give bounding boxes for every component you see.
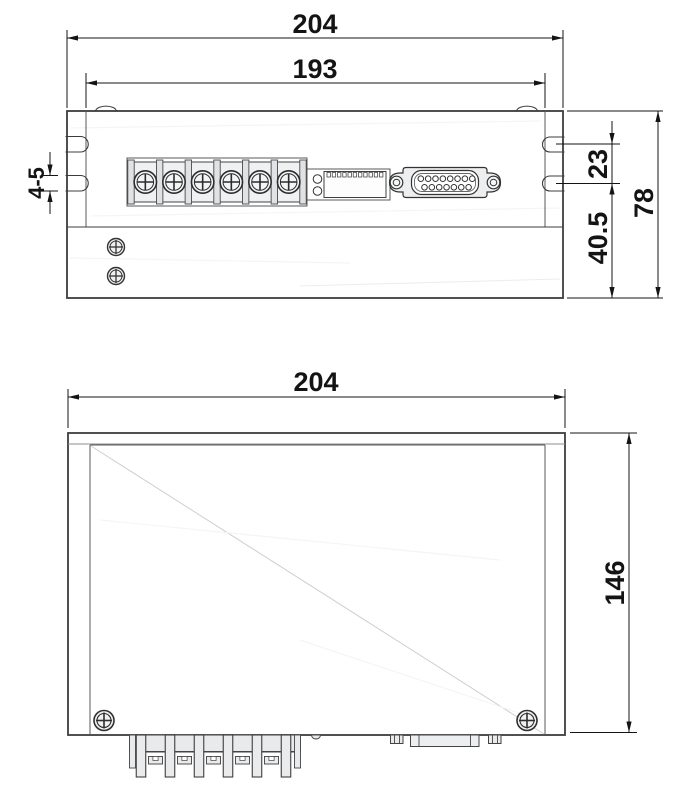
dip-tooth	[364, 173, 367, 178]
panel-screw	[108, 239, 125, 256]
db15-shell	[412, 171, 479, 195]
dip-switch	[307, 169, 390, 200]
dip-tooth	[327, 173, 330, 178]
dip-teeth	[327, 173, 383, 178]
dip-indicator-hole	[313, 175, 322, 184]
pin-block-end	[130, 735, 136, 768]
mounting-slot	[66, 137, 89, 153]
dip-tooth	[359, 173, 362, 178]
terminal-post	[271, 160, 277, 204]
dip-tooth	[332, 173, 335, 178]
terminal-pin	[252, 735, 262, 777]
terminal-block	[127, 158, 307, 206]
body-streak	[300, 279, 560, 286]
dip-tooth	[369, 173, 372, 178]
dim-label-overall-width: 204	[293, 367, 338, 397]
db15-ear-tab	[489, 735, 502, 744]
db-pin-hole	[455, 176, 461, 182]
dim-label-panel-width: 193	[292, 54, 337, 84]
mounting-slot	[66, 176, 89, 192]
panel-screw	[108, 268, 125, 285]
terminal-post	[185, 160, 191, 204]
bottom-bump	[312, 735, 321, 739]
body-streak	[100, 520, 500, 560]
top-dimensions: 204 146	[68, 367, 637, 733]
terminal-pin	[223, 735, 233, 777]
pin-tab-notch	[269, 757, 274, 761]
db-pin-hole	[458, 185, 464, 191]
dim-label-overall-depth: 146	[600, 560, 630, 605]
dim-label-overall-height: 78	[629, 188, 659, 218]
db15-ear-screw	[390, 176, 403, 189]
pin-block-end	[295, 735, 301, 768]
dip-tooth	[353, 173, 356, 178]
body-streak	[70, 258, 350, 263]
body-streak	[300, 640, 540, 720]
body-streak	[90, 208, 560, 216]
dim-label-overall-width: 204	[292, 9, 337, 39]
db-pin-hole	[422, 185, 428, 191]
terminal-post	[242, 160, 248, 204]
dim-label-slot-spacing: 23	[583, 149, 613, 179]
pin-tab-notch	[153, 757, 158, 761]
dip-tooth	[374, 173, 377, 178]
db-pin-hole	[433, 176, 439, 182]
db15-ear-tab	[391, 735, 404, 744]
pin-tab-notch	[182, 757, 187, 761]
technical-drawing: 204 193 4-5 23 40.5 78	[0, 0, 699, 800]
db-pin-hole	[451, 185, 457, 191]
dim-label-base-height: 40.5	[583, 212, 613, 265]
terminal-post	[156, 160, 162, 204]
dip-tooth	[338, 173, 341, 178]
top-view: 204 146	[68, 367, 637, 777]
front-body	[67, 111, 563, 298]
db-pin-hole	[447, 176, 453, 182]
panel-reflection-line	[91, 446, 544, 734]
db-pin-hole	[440, 176, 446, 182]
terminal-pin	[194, 735, 204, 777]
terminal-post	[300, 160, 306, 204]
db15-body-tab	[411, 735, 480, 747]
db-pin-hole	[429, 185, 435, 191]
dip-tooth	[343, 173, 346, 178]
dim-label-slot-width: 4-5	[24, 167, 49, 199]
panel-screw	[94, 711, 114, 731]
terminal-post	[128, 160, 134, 204]
dip-indicator-hole	[313, 187, 322, 196]
db-pin-hole	[462, 176, 468, 182]
terminal-post	[214, 160, 220, 204]
pin-tab-notch	[240, 757, 245, 761]
panel-screw	[517, 711, 537, 731]
db-pin-hole	[436, 185, 442, 191]
db15-connector	[390, 168, 501, 198]
db-pin-hole	[469, 176, 475, 182]
terminal-pin	[281, 735, 291, 777]
db15-ear-screw	[487, 176, 500, 189]
terminal-pin	[165, 735, 175, 777]
pin-block-plate	[130, 735, 301, 752]
front-view: 204 193 4-5 23 40.5 78	[24, 9, 663, 298]
dip-tooth	[380, 173, 383, 178]
body-streak	[70, 121, 540, 128]
terminal-pin	[136, 735, 146, 777]
db-pin-hole	[466, 185, 472, 191]
drawing-canvas: 204 193 4-5 23 40.5 78	[0, 0, 699, 800]
db-pin-hole	[444, 185, 450, 191]
db-pin-hole	[418, 176, 424, 182]
db-pin-hole	[425, 176, 431, 182]
dip-tooth	[348, 173, 351, 178]
pin-tab-notch	[211, 757, 216, 761]
